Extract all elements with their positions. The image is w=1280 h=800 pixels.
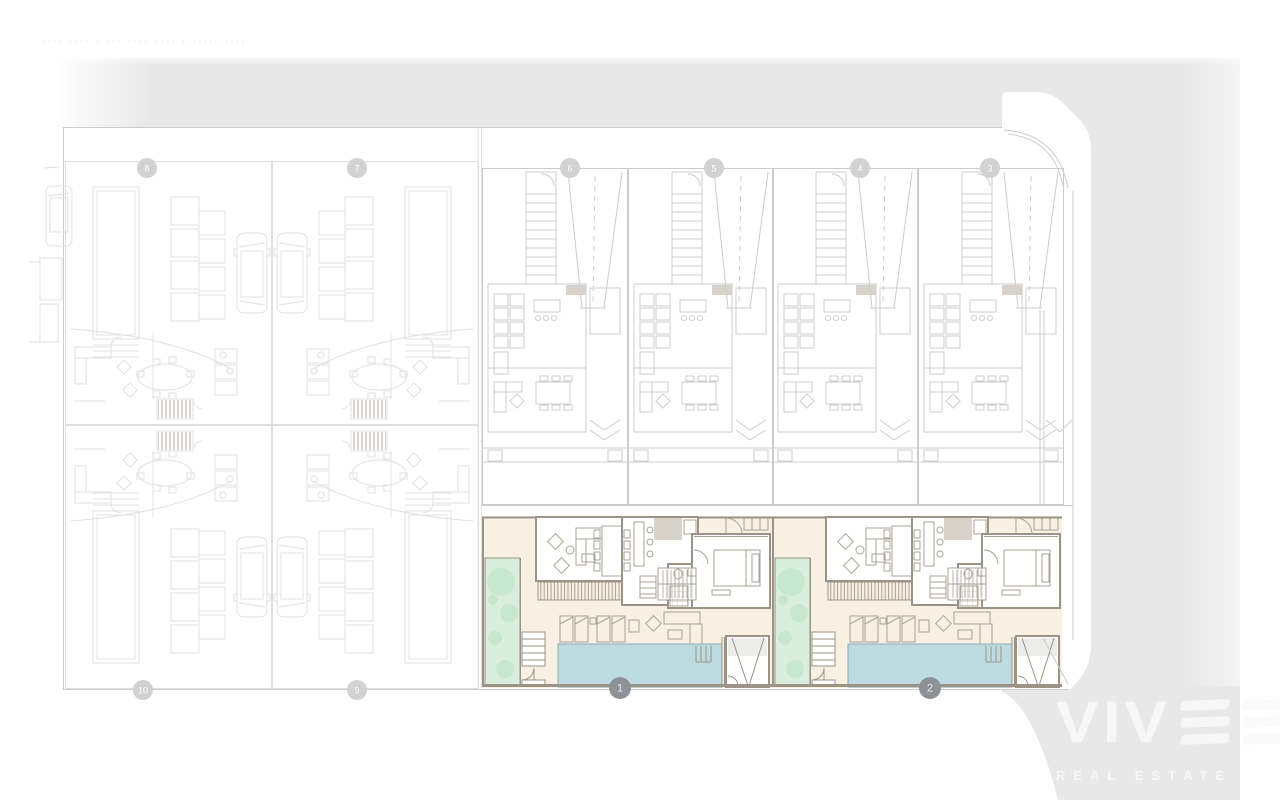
brand-logo: VIV REAL ESTATE <box>1056 690 1280 783</box>
brand-letters: VIV <box>1056 695 1171 748</box>
brand-tagline: REAL ESTATE <box>1056 768 1280 783</box>
unit-badge-label-9: 9 <box>354 686 359 696</box>
unit-badge-label-2: 2 <box>927 683 933 695</box>
brand-e-bars-icon <box>1181 700 1229 744</box>
unit-badge-label-10: 10 <box>138 686 148 696</box>
villa-unit-1 <box>482 516 772 688</box>
brand-wordmark: VIV <box>1056 690 1280 754</box>
site-plan-page: 87654310912 ···· ···· · ··· ···· ···· · … <box>0 0 1280 800</box>
unit-badge-label-8: 8 <box>144 164 149 174</box>
unit-badge-label-1: 1 <box>617 683 623 695</box>
unit-badge-label-4: 4 <box>857 164 862 174</box>
highlighted-villas <box>482 516 1068 688</box>
villa-unit-2 <box>772 516 1062 688</box>
unit-badge-label-6: 6 <box>567 164 572 174</box>
unit-badge-label-3: 3 <box>987 164 992 174</box>
site-plan-drawing: 87654310912 <box>0 0 1280 800</box>
unit-badge-label-5: 5 <box>711 164 716 174</box>
brand-e-bars-echo-icon <box>1243 700 1280 744</box>
drawing-title: ···· ···· · ··· ···· ···· · ····· ···· <box>42 36 247 46</box>
unit-badge-label-7: 7 <box>354 164 359 174</box>
